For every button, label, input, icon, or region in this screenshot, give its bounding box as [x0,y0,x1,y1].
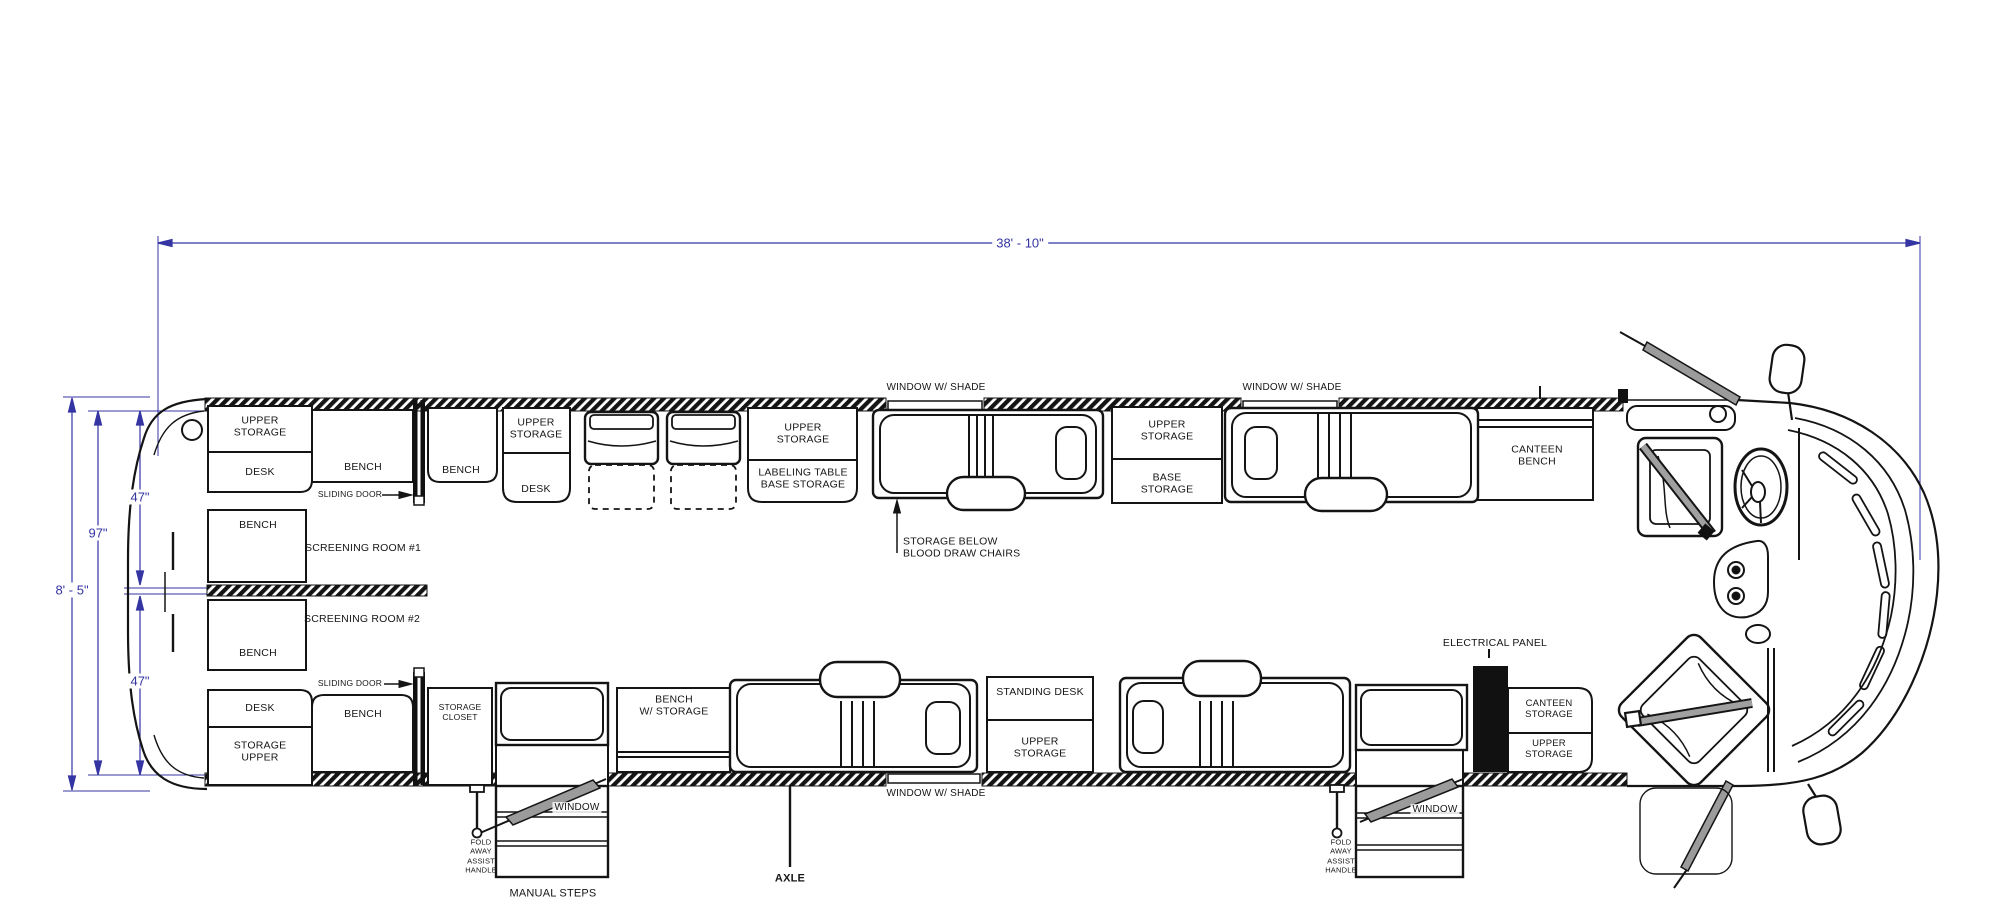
steering-wheel [1735,449,1787,525]
electrical-panel-box [1473,666,1508,772]
label-electrical-panel: ELECTRICAL PANEL [1443,637,1547,649]
label-bench-top-1: BENCH [344,461,382,473]
blood-draw-chair-b [667,412,740,509]
entry-door-open-top [1620,332,1740,405]
label-axle: AXLE [775,873,805,886]
label-canteen-storage: CANTEEN STORAGE [1525,698,1573,720]
blood-draw-station-4 [1120,661,1350,772]
label-bench-bottom: BENCH [344,708,382,720]
label-window-steps-2: WINDOW [1410,804,1459,816]
label-bench-sr1: BENCH [239,519,277,531]
dim-interior-width: 97" [84,526,111,541]
label-fold-away-1: FOLD AWAY ASSIST HANDLE [465,837,497,875]
label-mid-desk: DESK [521,483,550,495]
label-canteen-upper-storage: UPPER STORAGE [1525,738,1573,760]
label-desk-bottom: DESK [245,702,274,714]
dim-screening-top: 47" [126,490,153,505]
bench-bottom-box [312,695,413,772]
label-storage-closet: STORAGE CLOSET [439,702,482,722]
label-labeling-table: LABELING TABLE BASE STORAGE [758,467,847,492]
fold-away-handle-1 [470,785,484,838]
label-window-shade-top-1: WINDOW W/ SHADE [884,382,987,394]
label-window-shade-top-2: WINDOW W/ SHADE [1240,382,1343,394]
label-bench-top-2: BENCH [442,464,480,476]
side-mirror-bottom [1801,784,1843,847]
pedal-console [1714,541,1768,618]
label-rear-upper-storage: UPPER STORAGE [234,415,287,440]
floor-plan-canvas: 38' - 10" 8' - 5" 97" 47" 47" UPPER STOR… [0,0,2000,909]
label-bench-sr2: BENCH [239,647,277,659]
front-door-alcove [1356,685,1467,786]
blood-draw-chair-a [585,412,658,509]
bus-floor-plan-drawing [0,0,2000,909]
dim-overall-width: 8' - 5" [51,583,92,598]
label-sliding-door-bottom: SLIDING DOOR [318,678,382,688]
fold-away-handle-2 [1330,785,1344,838]
blood-draw-station-2 [1225,408,1478,511]
entry-door-alcove [496,683,608,786]
blood-draw-station-3 [730,662,977,772]
label-canteen-bench: CANTEEN BENCH [1511,444,1563,469]
entry-door-open-bottom [1640,781,1733,888]
label-rear-desk: DESK [245,466,274,478]
sliding-door-bottom-track [413,668,425,785]
label-window-steps-1: WINDOW [552,802,601,814]
label-mid-upper-storage: UPPER STORAGE [510,417,563,442]
label-labeling-upper-storage: UPPER STORAGE [777,422,830,447]
label-storage-upper-rear: STORAGE UPPER [234,740,287,765]
label-standing-upper-storage: UPPER STORAGE [1014,736,1067,761]
blood-draw-station-1 [873,410,1103,510]
rear-cap-details [165,420,202,652]
label-window-shade-bottom: WINDOW W/ SHADE [884,788,987,800]
sliding-door-top-track [413,400,425,505]
label-station2-upper: UPPER STORAGE [1141,419,1194,444]
dim-screening-bottom: 47" [126,674,153,689]
screening-room-divider-wall [207,585,427,596]
label-storage-below-chairs: STORAGE BELOW BLOOD DRAW CHAIRS [903,536,1020,561]
callout-leaders [382,492,901,688]
label-fold-away-2: FOLD AWAY ASSIST HANDLE [1325,837,1357,875]
seatbelt-buckle-bottom [1625,711,1641,727]
side-mirror-top [1768,343,1806,420]
label-sliding-door-top: SLIDING DOOR [318,489,382,499]
bench-sr2-box [208,600,306,670]
dim-overall-length: 38' - 10" [992,236,1048,251]
label-manual-steps: MANUAL STEPS [510,888,597,901]
label-bench-w-storage: BENCH W/ STORAGE [640,694,709,719]
label-station2-base: BASE STORAGE [1141,472,1194,497]
label-screening-room-1: SCREENING ROOM #1 [305,542,421,554]
label-screening-room-2: SCREENING ROOM #2 [304,613,420,625]
label-standing-desk: STANDING DESK [996,686,1084,698]
